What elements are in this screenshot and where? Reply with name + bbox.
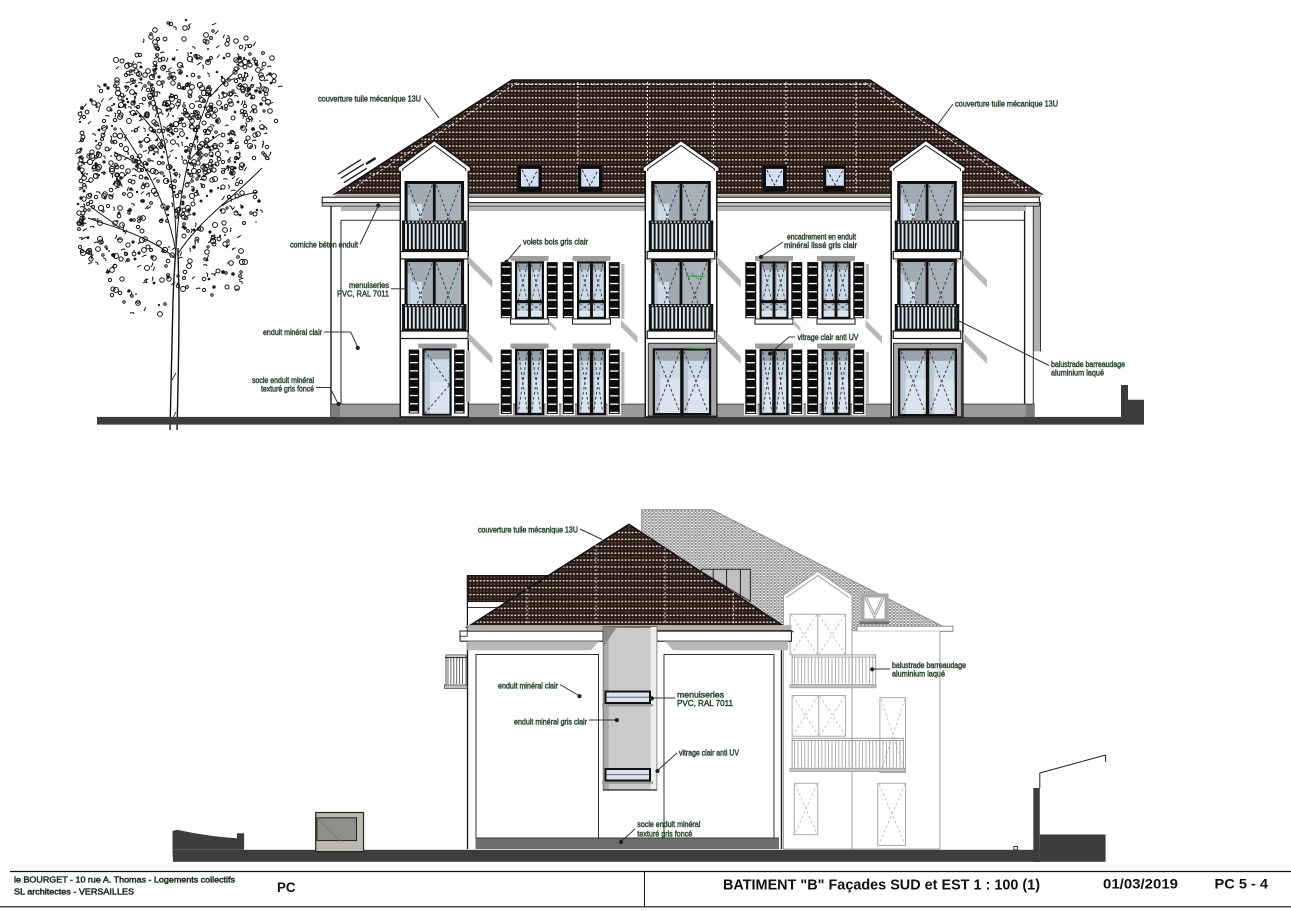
- svg-text:enduit minéral clair: enduit minéral clair: [498, 681, 558, 691]
- svg-text:texturé gris foncé: texturé gris foncé: [637, 829, 692, 839]
- svg-text:enduit minéral clair: enduit minéral clair: [263, 327, 322, 337]
- svg-text:PC: PC: [277, 880, 296, 895]
- svg-text:PVC, RAL 7011: PVC, RAL 7011: [337, 289, 389, 299]
- svg-text:PVC, RAL 7011: PVC, RAL 7011: [677, 698, 733, 708]
- svg-text:enduit minéral gris clair: enduit minéral gris clair: [514, 717, 587, 727]
- svg-text:socle enduit minéral: socle enduit minéral: [637, 819, 700, 829]
- svg-text:le BOURGET - 10 rue A. Thomas: le BOURGET - 10 rue A. Thomas - Logement…: [14, 875, 235, 885]
- svg-text:couverture tuile mécanique 13U: couverture tuile mécanique 13U: [318, 94, 421, 104]
- svg-text:BATIMENT "B" Façades SUD et ES: BATIMENT "B" Façades SUD et EST 1 : 100 …: [723, 878, 1040, 894]
- svg-text:PC 5 - 4: PC 5 - 4: [1215, 877, 1269, 892]
- svg-text:couverture tuile mécanique 13U: couverture tuile mécanique 13U: [955, 99, 1058, 109]
- svg-text:aluminium laqué: aluminium laqué: [892, 669, 945, 679]
- svg-text:vitrage clair anti UV: vitrage clair anti UV: [679, 748, 739, 758]
- svg-text:aluminium laqué: aluminium laqué: [1051, 368, 1104, 378]
- svg-text:texturé gris foncé: texturé gris foncé: [261, 384, 314, 394]
- svg-text:volets bois gris clair: volets bois gris clair: [523, 237, 588, 247]
- svg-text:corniche béton enduit: corniche béton enduit: [290, 240, 359, 250]
- svg-text:SL architectes - VERSAILLES: SL architectes - VERSAILLES: [14, 887, 134, 897]
- svg-text:01/03/2019: 01/03/2019: [1103, 877, 1178, 892]
- svg-text:couverture tuile mécanique 13U: couverture tuile mécanique 13U: [478, 525, 578, 535]
- svg-text:minéral lissé gris clair: minéral lissé gris clair: [784, 240, 857, 250]
- svg-text:vitrage clair anti UV: vitrage clair anti UV: [798, 332, 859, 342]
